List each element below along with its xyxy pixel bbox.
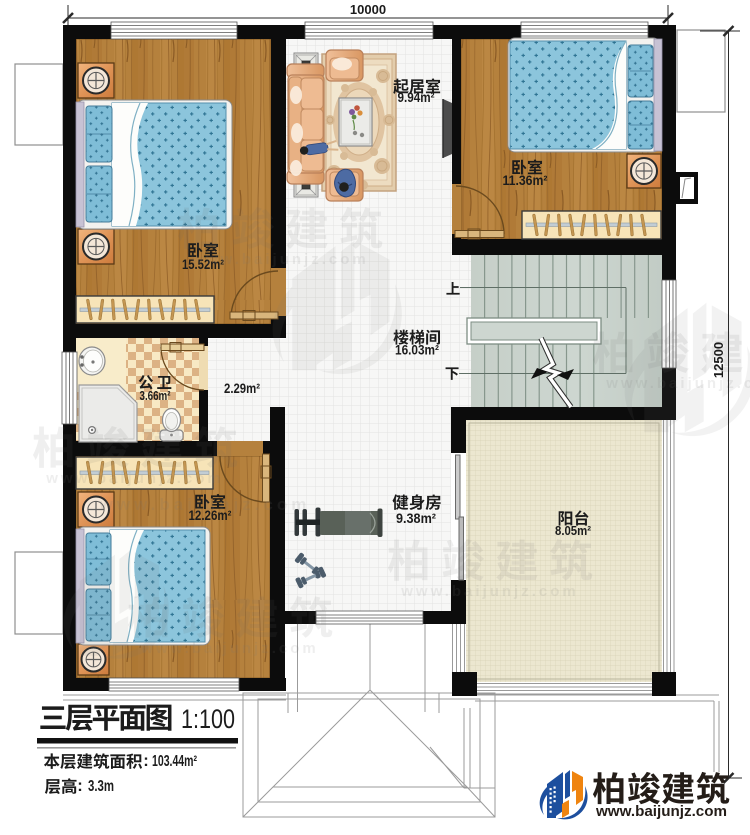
svg-text:2.29m²: 2.29m² [224,381,260,396]
svg-text:www.baijunjz.com: www.baijunjz.com [595,804,727,820]
svg-text:9.94m²: 9.94m² [398,90,435,105]
svg-text:16.03m²: 16.03m² [395,343,439,358]
svg-text:103.44m²: 103.44m² [152,753,197,770]
svg-text:1:100: 1:100 [181,704,235,734]
svg-text:9.38m²: 9.38m² [396,511,436,526]
svg-text:www.baijunjz.com: www.baijunjz.com [140,640,318,657]
svg-text:10000: 10000 [350,2,386,17]
svg-text::: : [77,777,83,795]
svg-text:www.baijunjz.com: www.baijunjz.com [99,495,311,514]
svg-text:www.baijunjz.com: www.baijunjz.com [45,470,223,487]
svg-text::: : [143,752,149,770]
svg-text:11.36m²: 11.36m² [503,173,548,188]
svg-text:8.05m²: 8.05m² [555,523,592,538]
svg-text:3.3m: 3.3m [88,778,114,795]
svg-text:www.baijunjz.com: www.baijunjz.com [400,583,578,600]
svg-text:3.66m²: 3.66m² [140,388,171,403]
svg-text:12500: 12500 [711,342,726,378]
